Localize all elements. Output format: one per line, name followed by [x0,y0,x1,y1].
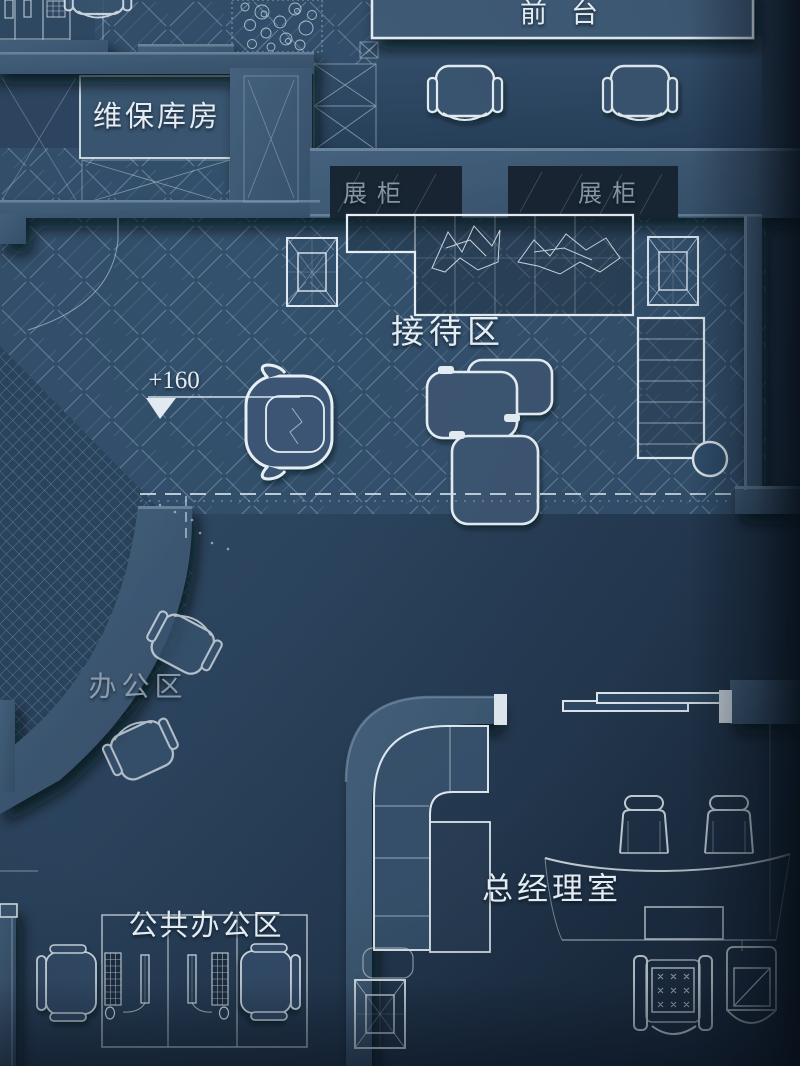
floor-plan-drawing [0,0,800,1066]
label-reception-area: 接待区 [391,305,505,353]
label-open-office-area: 公共办公区 [128,902,283,944]
floor-plan-canvas: 前台 维保库房 展柜 展柜 接待区 +160 办公区 公共办公区 总经理室 [0,0,800,1066]
label-display-case-right: 展柜 [578,174,646,209]
label-office-area: 办公区 [88,665,187,705]
label-elevation-marker: +160 [148,367,200,395]
label-front-desk: 前台 [508,0,622,31]
label-maintenance-room: 维保库房 [93,93,221,135]
label-gm-office: 总经理室 [482,864,622,909]
label-display-case-left: 展柜 [343,174,411,209]
lighting-overlay [0,0,800,1066]
